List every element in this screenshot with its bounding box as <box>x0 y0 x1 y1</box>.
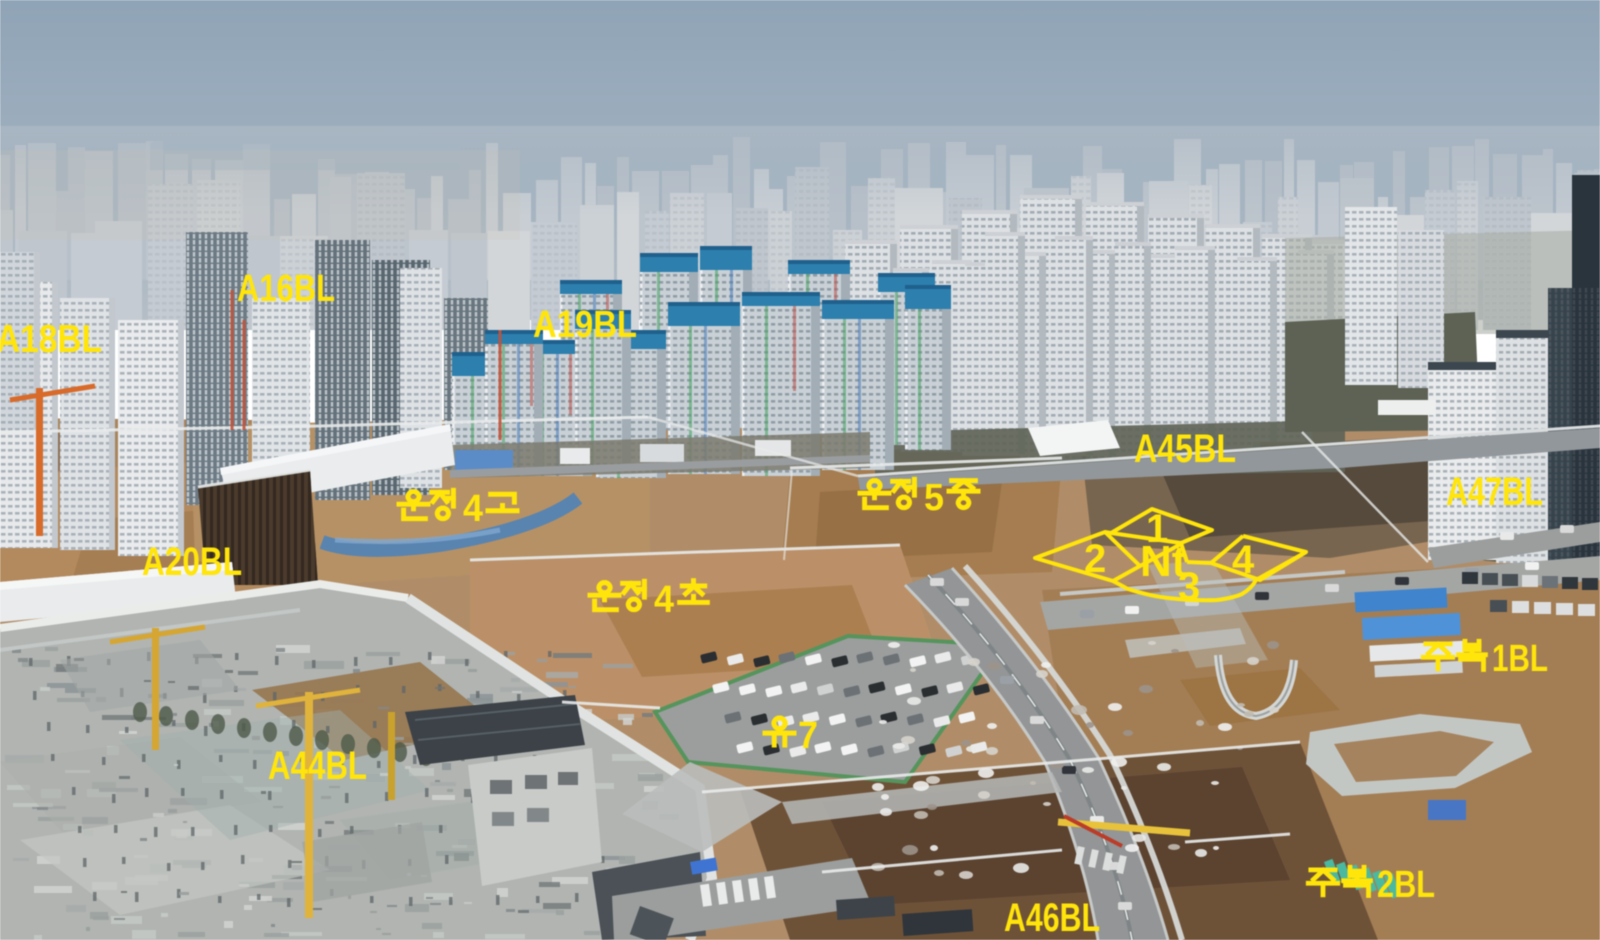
svg-text:A18BL: A18BL <box>0 318 102 361</box>
svg-text:A44BL: A44BL <box>268 744 367 788</box>
svg-text:A20BL: A20BL <box>142 540 242 584</box>
svg-text:1BL: 1BL <box>1492 638 1548 680</box>
svg-text:A46BL: A46BL <box>1004 896 1100 940</box>
svg-text:2: 2 <box>1084 537 1106 581</box>
svg-text:7: 7 <box>798 715 818 757</box>
svg-text:A45BL: A45BL <box>1134 427 1236 471</box>
svg-text:A47BL: A47BL <box>1446 470 1543 514</box>
svg-text:2BL: 2BL <box>1377 864 1435 906</box>
svg-text:3: 3 <box>1178 565 1200 609</box>
svg-text:4: 4 <box>1232 538 1255 582</box>
svg-text:5: 5 <box>924 477 944 519</box>
svg-text:A19BL: A19BL <box>533 304 637 346</box>
svg-text:4: 4 <box>654 579 674 621</box>
svg-text:4: 4 <box>463 488 483 530</box>
svg-text:A16BL: A16BL <box>237 268 335 310</box>
